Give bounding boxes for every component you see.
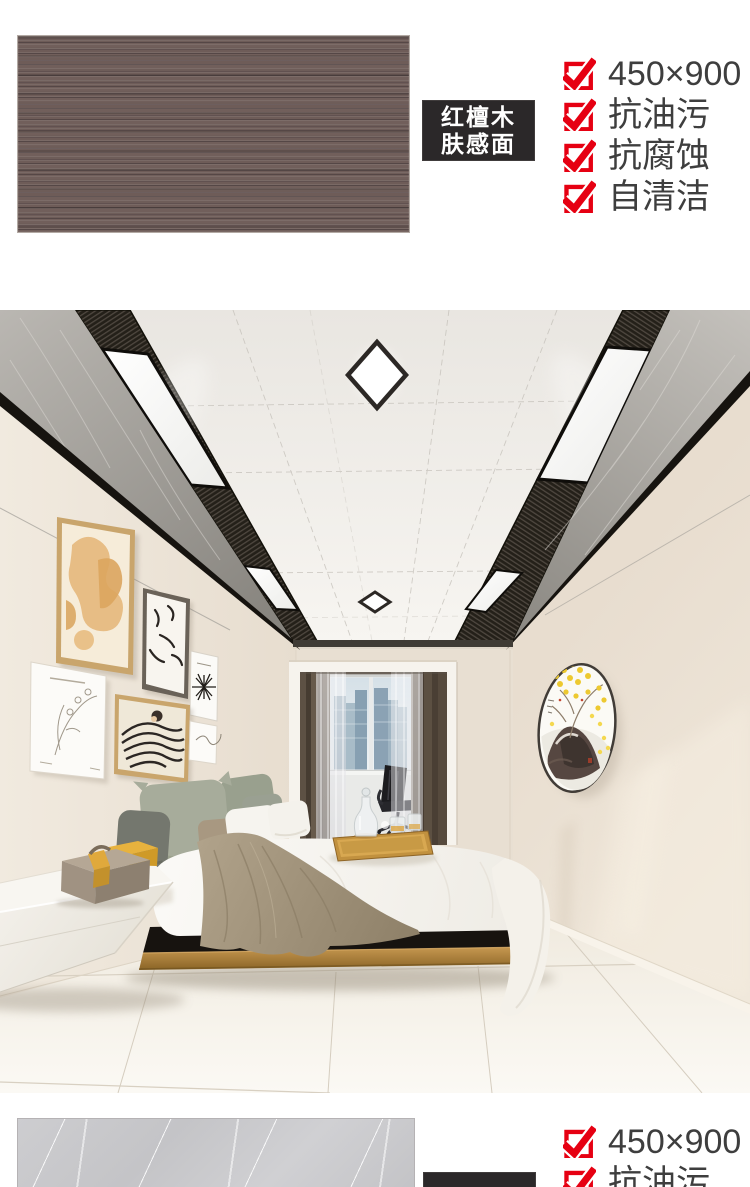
feature-text: 自清洁: [608, 180, 710, 214]
feature-item: 450×900: [563, 1121, 741, 1162]
variant-label: 红檀木 肤感面: [422, 100, 535, 161]
checked-checkbox-icon: [563, 57, 596, 90]
feature-text: 450×900: [608, 1125, 741, 1159]
feature-text: 抗油污: [608, 98, 710, 132]
wall-art-frame-starburst: [190, 651, 218, 721]
wall-art-frame-figure: [114, 694, 193, 787]
checked-checkbox-icon: [563, 1166, 596, 1187]
checked-checkbox-icon: [563, 1125, 596, 1158]
product-detail-page: 红檀木 肤感面 450×900 抗油污 抗腐蚀 自清洁: [0, 0, 750, 1187]
feature-item: 抗腐蚀: [563, 135, 741, 176]
variant-finish: 肤感面: [441, 131, 516, 158]
bedroom-rendering: [0, 310, 750, 1093]
checked-checkbox-icon: [563, 180, 596, 213]
feature-text: 450×900: [608, 57, 741, 91]
feature-item: 抗油污: [563, 94, 741, 135]
wall-art-frame-lineart: [189, 721, 221, 764]
variant-label-partial: [423, 1172, 536, 1187]
wall-art-frame-abstract: [56, 517, 135, 675]
feature-text: 抗腐蚀: [608, 139, 710, 173]
checked-checkbox-icon: [563, 139, 596, 172]
feature-item: 抗油污: [563, 1162, 741, 1187]
marble-panel-swatch: [17, 1118, 415, 1187]
wall-art-frame-brushstrokes: [142, 588, 193, 703]
feature-text: 抗油污: [608, 1166, 710, 1187]
feature-list-bottom: 450×900 抗油污: [563, 1121, 741, 1187]
feature-item: 450×900: [563, 53, 741, 94]
wall-art-frame-botanical: [30, 662, 110, 784]
variant-material: 红檀木: [441, 104, 516, 131]
feature-list-top: 450×900 抗油污 抗腐蚀 自清洁: [563, 53, 741, 217]
checked-checkbox-icon: [563, 98, 596, 131]
feature-item: 自清洁: [563, 176, 741, 217]
ceiling-back-edge: [293, 640, 513, 647]
wood-panel-swatch: [17, 35, 410, 233]
